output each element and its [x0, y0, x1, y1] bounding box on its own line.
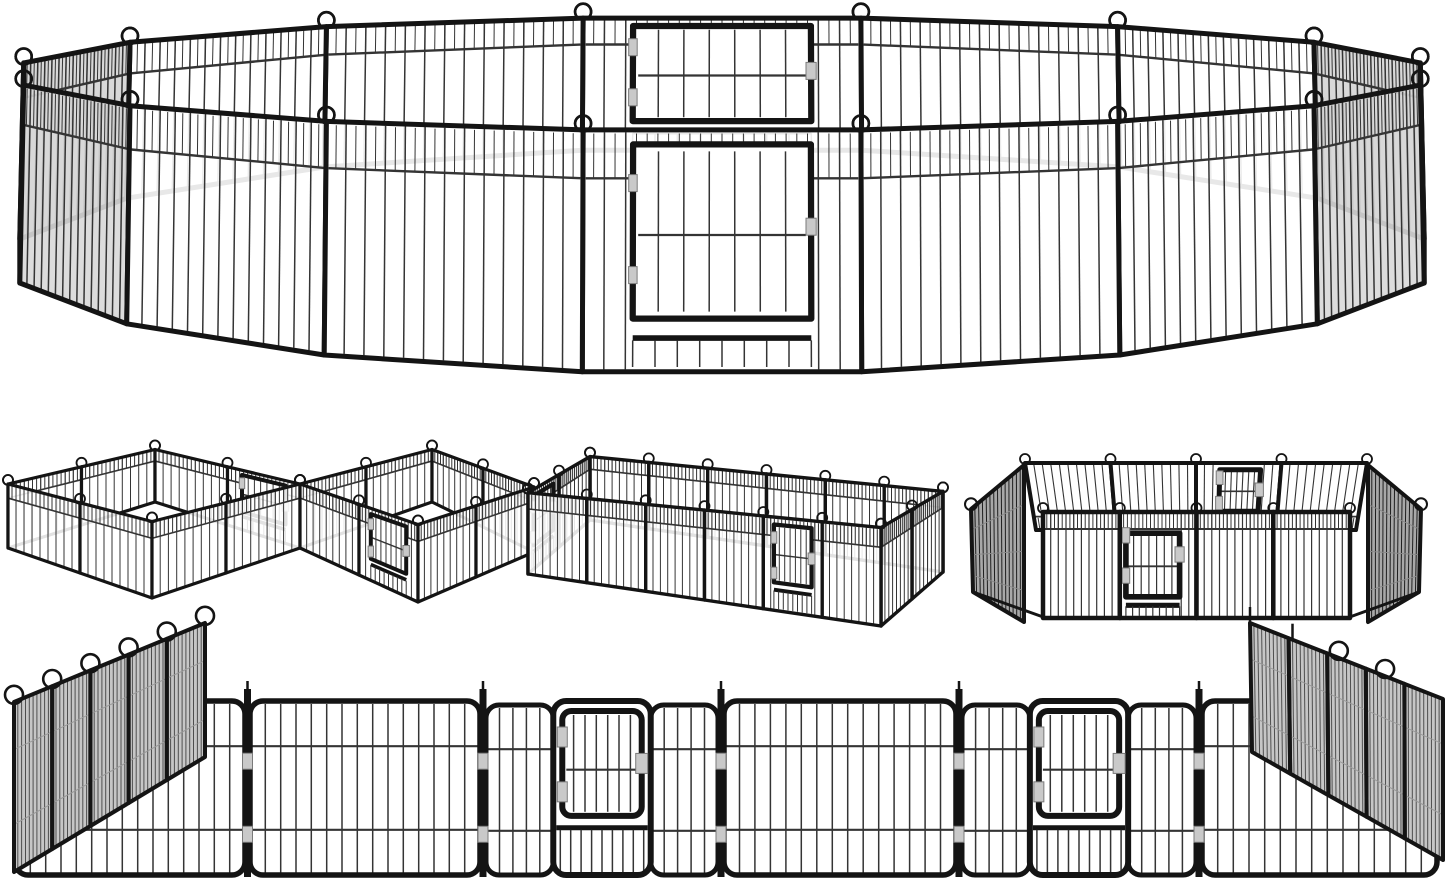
square-configuration-view — [965, 454, 1427, 622]
playpen-product-image — [0, 0, 1445, 880]
double-square-configuration-view — [3, 441, 539, 603]
rectangle-configuration-view — [523, 448, 948, 626]
flat-row-view — [5, 607, 1443, 877]
product-image-canvas — [0, 0, 1445, 880]
ring-configuration-view — [16, 4, 1429, 372]
